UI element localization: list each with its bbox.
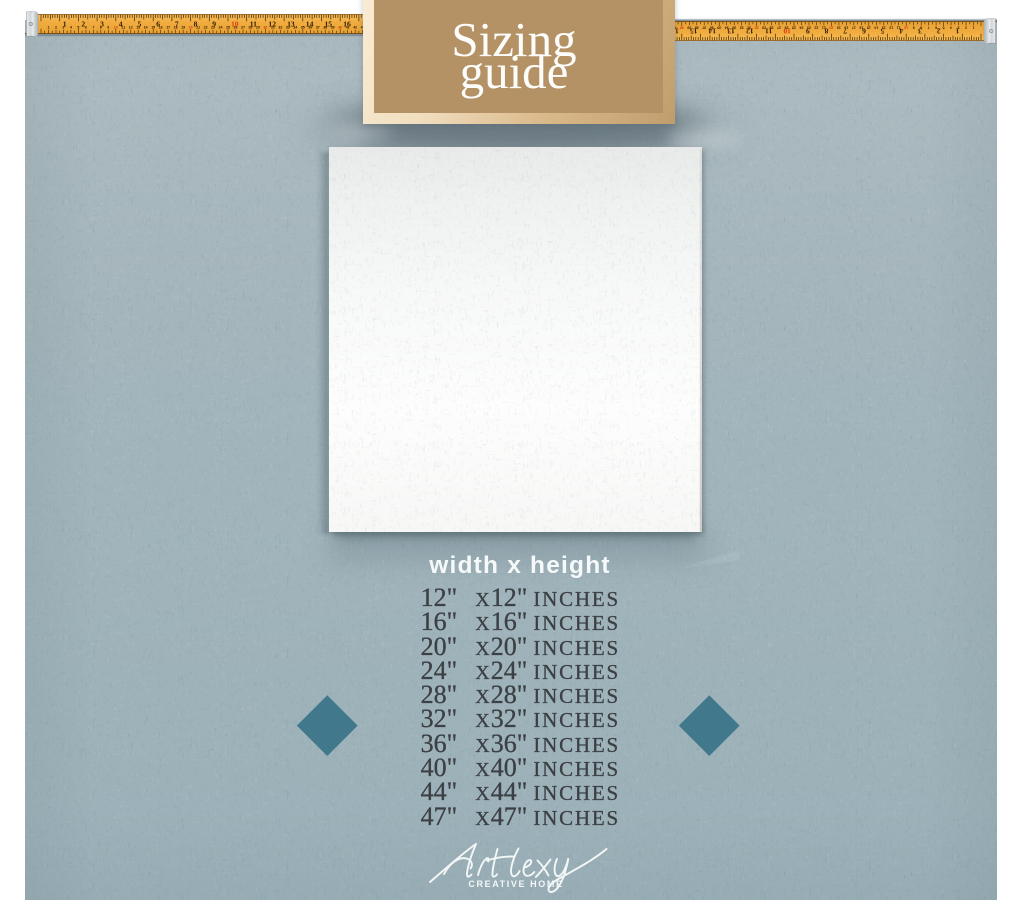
svg-text:CREATIVE HOME: CREATIVE HOME xyxy=(468,879,563,889)
